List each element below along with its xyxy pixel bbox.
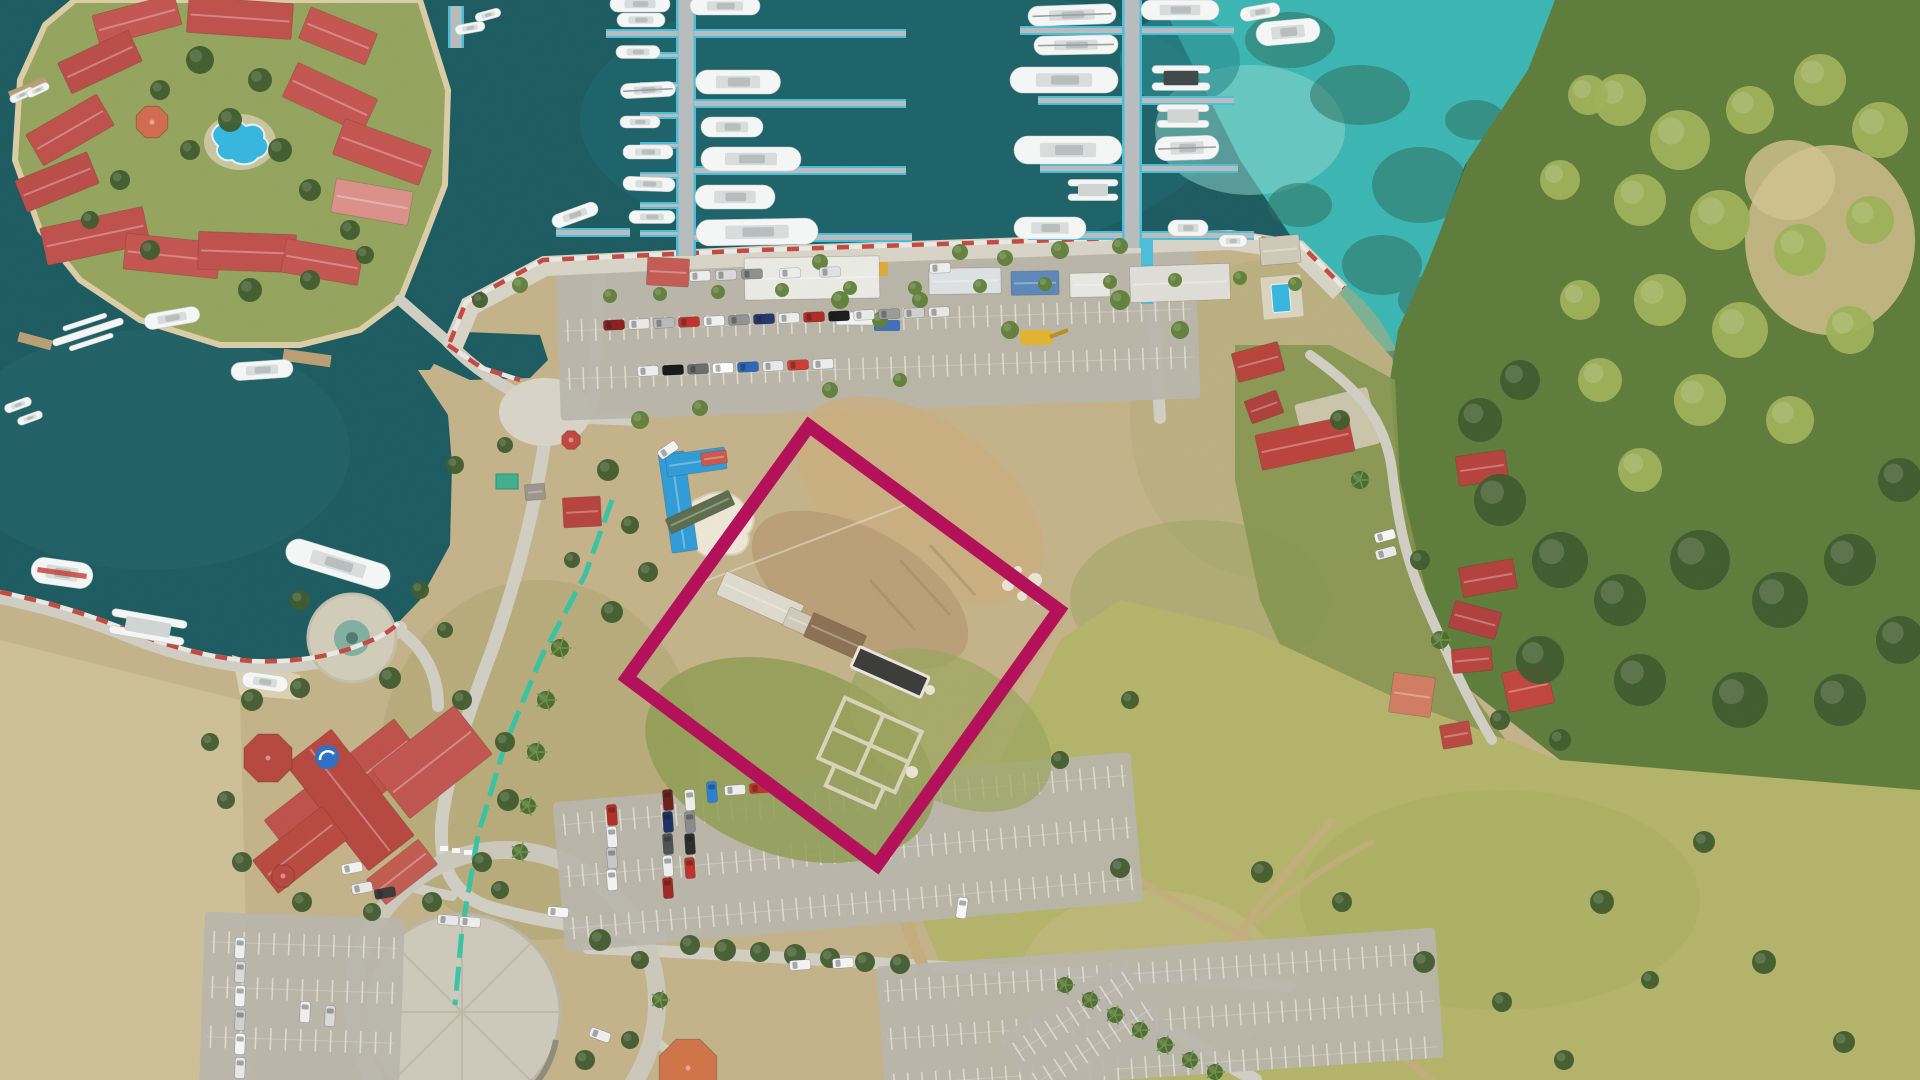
photo-grain [0,0,1920,1080]
aerial-scene [0,0,1920,1080]
aerial-photo [0,0,1920,1080]
